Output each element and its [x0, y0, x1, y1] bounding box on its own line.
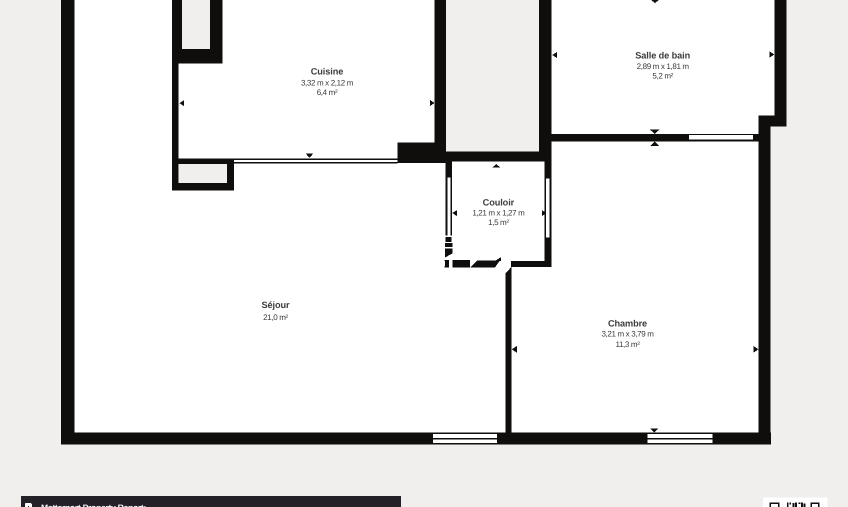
svg-text:6,4 m²: 6,4 m² [317, 88, 338, 97]
svg-text:1,21 m x 1,27 m: 1,21 m x 1,27 m [472, 208, 525, 217]
svg-text:3,32 m x 2,12 m: 3,32 m x 2,12 m [301, 79, 354, 88]
svg-text:1,5 m²: 1,5 m² [488, 218, 509, 227]
svg-text:Salle de bain: Salle de bain [635, 51, 690, 61]
svg-text:21,0 m²: 21,0 m² [263, 313, 288, 322]
svg-text:Chambre: Chambre [608, 318, 647, 328]
svg-text:Couloir: Couloir [483, 197, 515, 207]
svg-text:11,3 m²: 11,3 m² [615, 340, 640, 349]
svg-text:Matterport Property Report:: Matterport Property Report: [41, 502, 146, 507]
svg-text:5,2 m²: 5,2 m² [652, 71, 673, 80]
svg-text:2,89 m x 1,81 m: 2,89 m x 1,81 m [637, 62, 690, 71]
svg-text:3,21 m x 3,79 m: 3,21 m x 3,79 m [601, 330, 654, 339]
svg-text:Cuisine: Cuisine [311, 67, 343, 77]
svg-text:Séjour: Séjour [262, 300, 291, 310]
